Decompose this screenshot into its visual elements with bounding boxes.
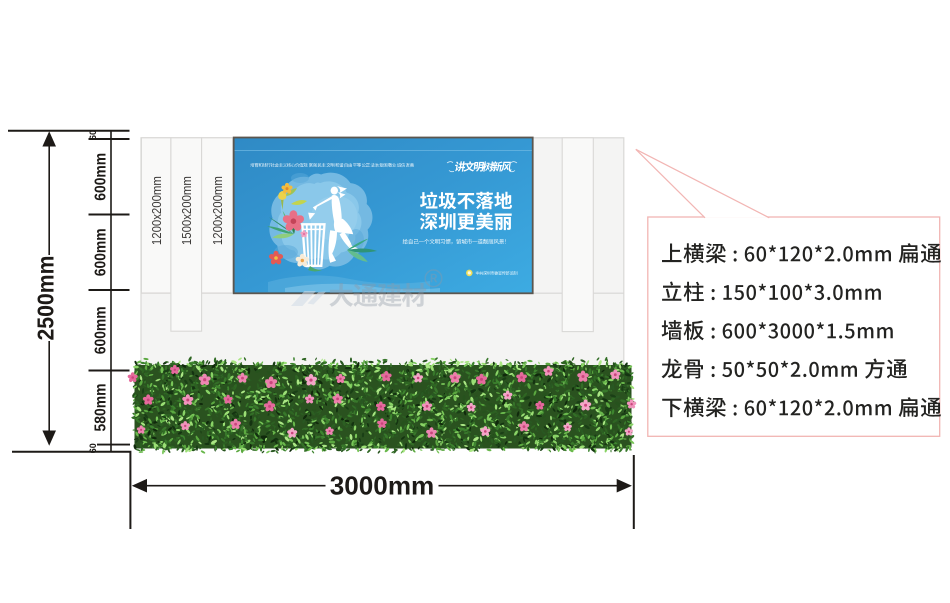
svg-text:2500mm: 2500mm <box>33 256 59 341</box>
svg-text:600mm: 600mm <box>92 306 109 354</box>
svg-text:60: 60 <box>88 130 98 140</box>
svg-text:1200x200mm: 1200x200mm <box>149 176 164 245</box>
svg-text:3000mm: 3000mm <box>330 471 435 501</box>
svg-text:580mm: 580mm <box>92 384 109 432</box>
svg-text:600mm: 600mm <box>92 153 109 201</box>
svg-text:60: 60 <box>88 443 98 453</box>
svg-text:600mm: 600mm <box>92 228 109 276</box>
svg-text:1200x200mm: 1200x200mm <box>210 176 225 245</box>
svg-text:1500x200mm: 1500x200mm <box>179 176 194 245</box>
